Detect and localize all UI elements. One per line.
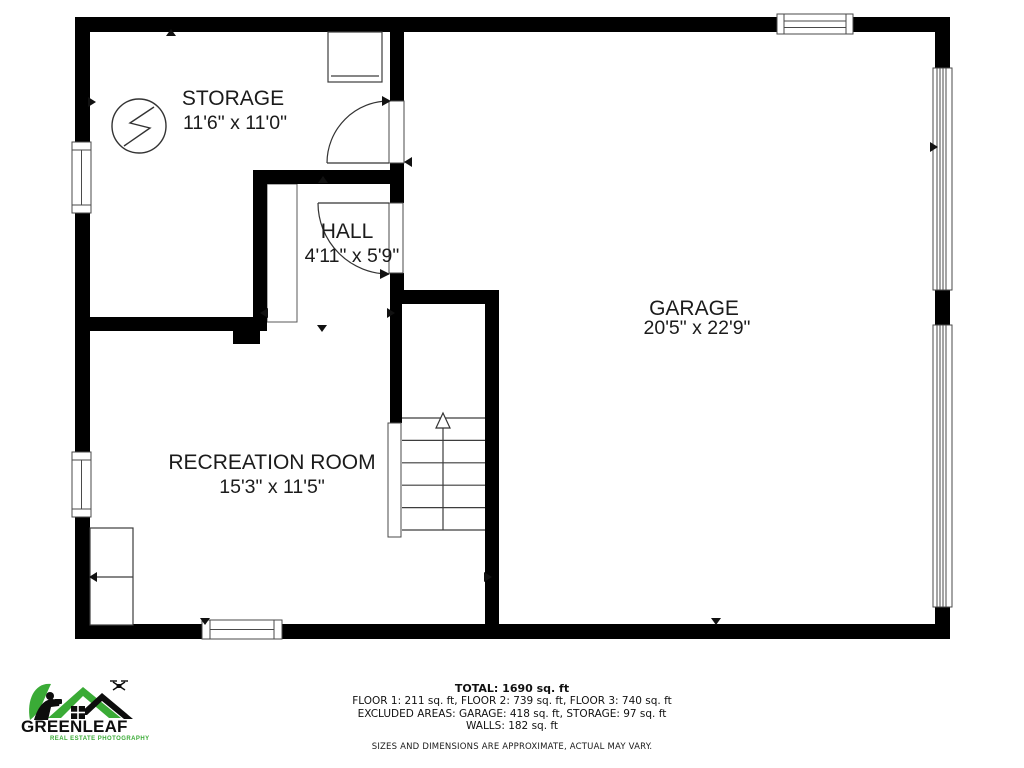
recreation-room-label: RECREATION ROOM [168, 452, 375, 473]
staircase [402, 413, 485, 530]
stair-opening-jamb [388, 423, 401, 537]
logo-brand-text: GREENLEAF [21, 717, 113, 737]
electrical-panel-icon [112, 99, 166, 153]
hall-closet-outline [267, 184, 297, 322]
window-left-storage [72, 142, 91, 213]
walls-area: WALLS: 182 sq. ft [0, 720, 1024, 732]
stairs-up-arrow [436, 413, 450, 428]
total-area: TOTAL: 1690 sq. ft [0, 683, 1024, 695]
wall-left [75, 17, 90, 639]
walls [75, 17, 950, 639]
garage-door-lower [933, 325, 952, 607]
floor-plan-drawing [0, 0, 1024, 768]
garage-door-upper [933, 68, 952, 290]
window-bottom-recreation [202, 620, 282, 639]
recreation-room-dims: 15'3" x 11'5" [219, 478, 325, 498]
logo-tagline-text: REAL ESTATE PHOTOGRAPHY [50, 736, 150, 742]
storage-room-label: STORAGE [182, 88, 284, 109]
garage-label: GARAGE [649, 298, 739, 319]
storage-door [327, 96, 404, 163]
storage-room-dims: 11'6" x 11'0" [183, 114, 287, 134]
area-summary: TOTAL: 1690 sq. ft FLOOR 1: 211 sq. ft, … [0, 683, 1024, 733]
hall-label: HALL [321, 221, 374, 242]
window-left-recreation [72, 452, 91, 517]
window-top-garage [777, 14, 853, 34]
storage-cabinet [328, 32, 382, 82]
garage-dims: 20'5" x 22'9" [644, 319, 751, 339]
floor-plan-page: STORAGE 11'6" x 11'0" HALL 4'11" x 5'9" … [0, 0, 1024, 768]
hall-dims: 4'11" x 5'9" [305, 247, 400, 267]
excluded-areas: EXCLUDED AREAS: GARAGE: 418 sq. ft, STOR… [0, 708, 1024, 720]
floor-areas: FLOOR 1: 211 sq. ft, FLOOR 2: 739 sq. ft… [0, 695, 1024, 707]
disclaimer-text: SIZES AND DIMENSIONS ARE APPROXIMATE, AC… [0, 742, 1024, 752]
